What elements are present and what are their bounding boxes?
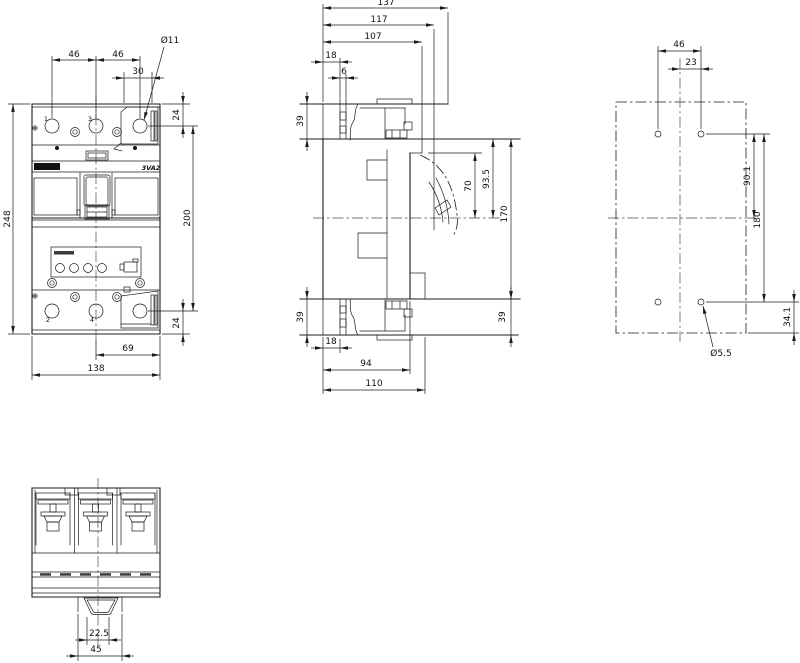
dim-6: 6 [341,67,347,77]
handle-swing-arc [420,155,458,236]
dim-24-top: 24 [172,109,182,121]
rating-window [86,151,108,160]
bottom-pole-3 [121,493,155,545]
terminal-number-1: 1 [44,115,48,123]
dim-pole-pitch-right: 46 [112,50,124,60]
dim-94: 94 [360,359,372,369]
left-cover-pad [34,178,77,215]
technical-drawing-page: 1 3 3VA2 [0,0,800,663]
product-type-label: 3VA2 [142,164,161,172]
dim-200: 200 [183,209,193,226]
front-view: 1 3 3VA2 [32,95,161,345]
dim-170: 170 [500,205,510,222]
bottom-toggle-handle [78,597,122,615]
right-cover-pad [115,178,158,215]
drilling-plan-view: 46 23 90.1 180 34.1 Ø5.5 [608,40,799,359]
mounting-hole-top-left [655,131,661,137]
brand-logo-bar [34,163,60,170]
bottom-pole-2 [79,493,113,545]
dim-107: 107 [364,32,381,42]
dim-45: 45 [90,645,101,655]
trip-dial-4 [98,264,107,273]
dim-117: 117 [370,15,387,25]
dim-23: 23 [685,58,696,68]
front-bottom-terminals [33,287,158,328]
dim-pole-pitch-left: 46 [68,50,80,60]
dim-18-top: 18 [325,51,337,61]
mounting-hole-bottom-left [655,299,661,305]
dim-39-top-left: 39 [296,115,306,127]
test-connector [124,262,137,272]
top-terminal-lug [350,99,412,140]
dim-hole-pitch-46: 46 [673,40,685,50]
toggle-frame [84,175,110,206]
dim-39-bottom-right: 39 [498,311,508,323]
dim-hole-dia-5-5: Ø5.5 [710,348,731,359]
side-handle-end [435,200,451,215]
dim-180: 180 [753,211,763,228]
dim-137: 137 [377,0,394,8]
bottom-terminal-lug [350,299,412,340]
dim-90-1: 90.1 [743,166,753,186]
trip-unit-text-smudge [54,251,74,255]
dim-hole-dia-11: Ø11 [161,35,180,46]
breaker-dimension-drawing: 1 3 3VA2 [0,0,800,663]
bottom-view [32,478,160,648]
terminal-number-4: 4 [90,316,94,324]
trip-dial-1 [56,264,65,273]
dim-18-bottom: 18 [325,337,337,347]
bottom-pole-1 [36,493,70,545]
terminal-hole-6 [133,304,147,318]
dim-138: 138 [87,364,104,374]
top-right-terminal-box [121,107,158,144]
trip-dial-3 [84,264,93,273]
mounting-hole-bottom-right [698,299,704,305]
mounting-hole-top-right [698,131,704,137]
dim-248: 248 [3,210,13,227]
terminal-hole-5 [133,119,147,133]
dim-39-bottom-left: 39 [296,311,306,323]
dim-34-1: 34.1 [783,307,793,327]
dim-24-bottom: 24 [172,317,182,329]
bottom-dimensions: 22.5 45 [66,614,134,661]
front-top-terminals [33,107,158,151]
terminal-number-3: 3 [88,115,92,123]
bottom-right-terminal-box [121,291,158,328]
trip-dial-2 [70,264,79,273]
dim-110: 110 [365,379,382,389]
dim-69: 69 [122,344,134,354]
dim-22-5: 22.5 [89,629,109,639]
terminal-number-2: 2 [46,316,50,324]
dim-93-5: 93.5 [482,169,492,189]
dim-70: 70 [464,180,474,192]
dim-terminal-opening: 30 [132,67,144,77]
mounting-plate-outline [616,102,746,333]
